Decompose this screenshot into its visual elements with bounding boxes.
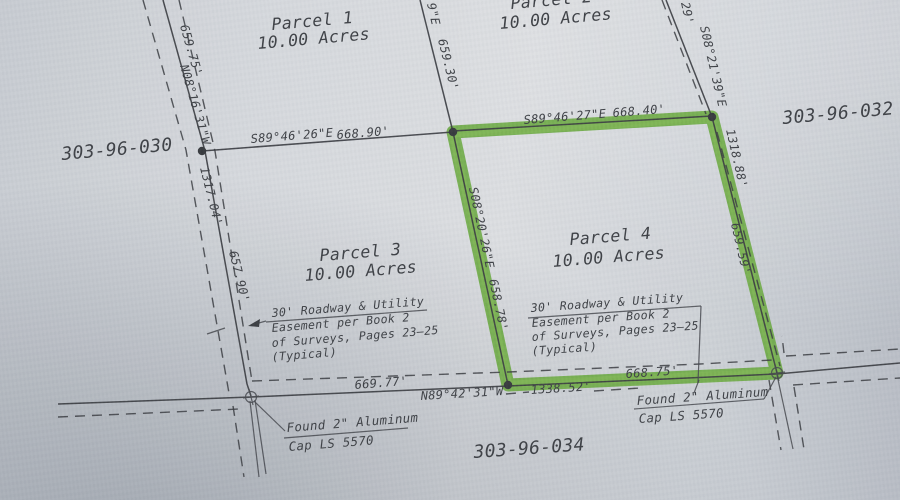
east-road-dashed-south-west <box>769 380 781 450</box>
south-line-label-dashes-a <box>506 392 529 394</box>
west-line-middle-distance: 1317.04' <box>197 165 225 227</box>
west-line-tick <box>207 328 225 334</box>
plat-drawing: Parcel 1 10.00 Acres Parcel 2 10.00 Acre… <box>0 0 900 500</box>
corner-monument-dot-parcel4-sw <box>504 381 512 389</box>
east-line-partial-top: 29' <box>678 1 696 26</box>
parcel4-acreage: 10.00 Acres <box>552 243 666 271</box>
south-line-bearing: N89°42'31"W <box>419 384 505 403</box>
corner-monument-dot-center <box>449 128 457 136</box>
apn-west-label: 303-96-030 <box>60 134 174 165</box>
east-road-dashed-corner <box>782 336 784 353</box>
corner-monument-dot-nw <box>198 147 206 155</box>
found-cap-east-line1: Found 2" Aluminum <box>636 384 769 408</box>
east-road-dashed-south-east <box>794 387 804 449</box>
south-road-easement-south-dashed-west <box>58 409 240 417</box>
parcel4-west-line <box>453 132 508 385</box>
plat-photo: Parcel 1 10.00 Acres Parcel 2 10.00 Acre… <box>0 0 900 500</box>
easement-note-west-arrowhead <box>248 319 260 327</box>
south-road-easement-north-dashed-east <box>786 349 900 356</box>
found-cap-west-line2: Cap LS 5570 <box>288 432 374 454</box>
south-line-total-distance: 1338.52' <box>530 379 591 397</box>
center-line-partial-bearing: 9"E <box>424 2 443 28</box>
west-line-south-distance: 657.90' <box>226 249 252 304</box>
apn-east-label: 303-96-032 <box>781 98 895 129</box>
easement-note-east: 30' Roadway & Utility Easement per Book … <box>529 290 699 358</box>
north-line-west-distance: 668.90' <box>336 124 390 142</box>
north-line-west-bearing: S89°46'26"E <box>250 126 334 146</box>
south-road-easement-south-dashed-east <box>793 378 900 385</box>
found-monument-symbol-sw <box>243 389 259 405</box>
easement-note-west: 30' Roadway & Utility Easement per Book … <box>270 294 439 364</box>
found-cap-note-east: Found 2" Aluminum Cap LS 5570 <box>636 384 769 426</box>
east-line-bearing: S08°21'39"E <box>697 25 729 109</box>
found-cap-note-west: Found 2" Aluminum Cap LS 5570 <box>286 410 419 454</box>
center-line-distance: 659.30' <box>435 37 461 92</box>
west-road-easement-west-dashed-lower <box>233 406 244 477</box>
corner-monument-dot-ne <box>708 113 716 121</box>
south-line-west-distance: 669.77' <box>354 374 408 392</box>
found-cap-west-line1: Found 2" Aluminum <box>286 410 419 435</box>
apn-south-label: 303-96-034 <box>472 434 586 463</box>
west-road-edge-a <box>250 401 259 477</box>
south-line-label-dashes-b <box>594 388 640 391</box>
